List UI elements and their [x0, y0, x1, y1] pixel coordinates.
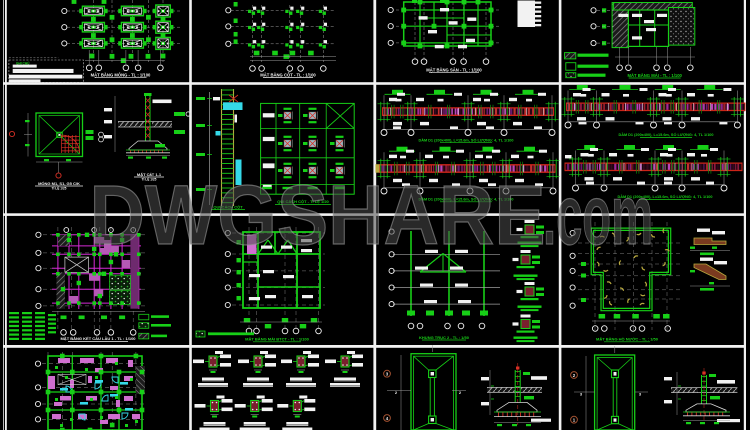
svg-text:MẶT BẰNG MÓNG - TL : 1/100: MẶT BẰNG MÓNG - TL : 1/100 — [91, 73, 151, 78]
svg-text:MẶT BẰNG CỘT - TL : 1/100: MẶT BẰNG CỘT - TL : 1/100 — [260, 72, 316, 77]
svg-text:MẶT BẰNG MÁI BTCT - TL : 1/100: MẶT BẰNG MÁI BTCT - TL : 1/100 — [245, 337, 309, 342]
svg-text:DẦM D1 (200x400), L=15.6m, SỐ: DẦM D1 (200x400), L=15.6m, SỐ LƯỢNG: 4, … — [418, 138, 513, 143]
svg-text:MẶT BẰNG SÀN - TL : 1/100: MẶT BẰNG SÀN - TL : 1/100 — [426, 68, 482, 73]
svg-text:.com: .com — [543, 168, 653, 262]
svg-text:GHI CHÚ: GHI CHÚ — [16, 60, 30, 65]
svg-text:TỈ LỆ 1/25: TỈ LỆ 1/25 — [52, 186, 67, 191]
svg-text:DWGSHARE: DWGSHARE — [90, 168, 546, 262]
svg-text:MẶT BẰNG MÁI - TL : 1/100: MẶT BẰNG MÁI - TL : 1/100 — [628, 73, 683, 78]
svg-text:DẦM D1 (200x400), L=15.6m, SỐ: DẦM D1 (200x400), L=15.6m, SỐ LƯỢNG: 4, … — [618, 132, 713, 137]
svg-text:MẶT BẰNG HỒ NƯỚC - TL : 1/50: MẶT BẰNG HỒ NƯỚC - TL : 1/50 — [596, 337, 659, 342]
svg-text:MÓNG M1, S1, G5 C/K: MÓNG M1, S1, G5 C/K — [38, 181, 80, 186]
svg-text:MẶT BẰNG KẾT CẤU LẦU 1 - TL :: MẶT BẰNG KẾT CẤU LẦU 1 - TL : 1/100 — [60, 336, 136, 341]
svg-text:KHUNG TRỤC 2 - TL : 1/50: KHUNG TRỤC 2 - TL : 1/50 — [419, 335, 470, 340]
